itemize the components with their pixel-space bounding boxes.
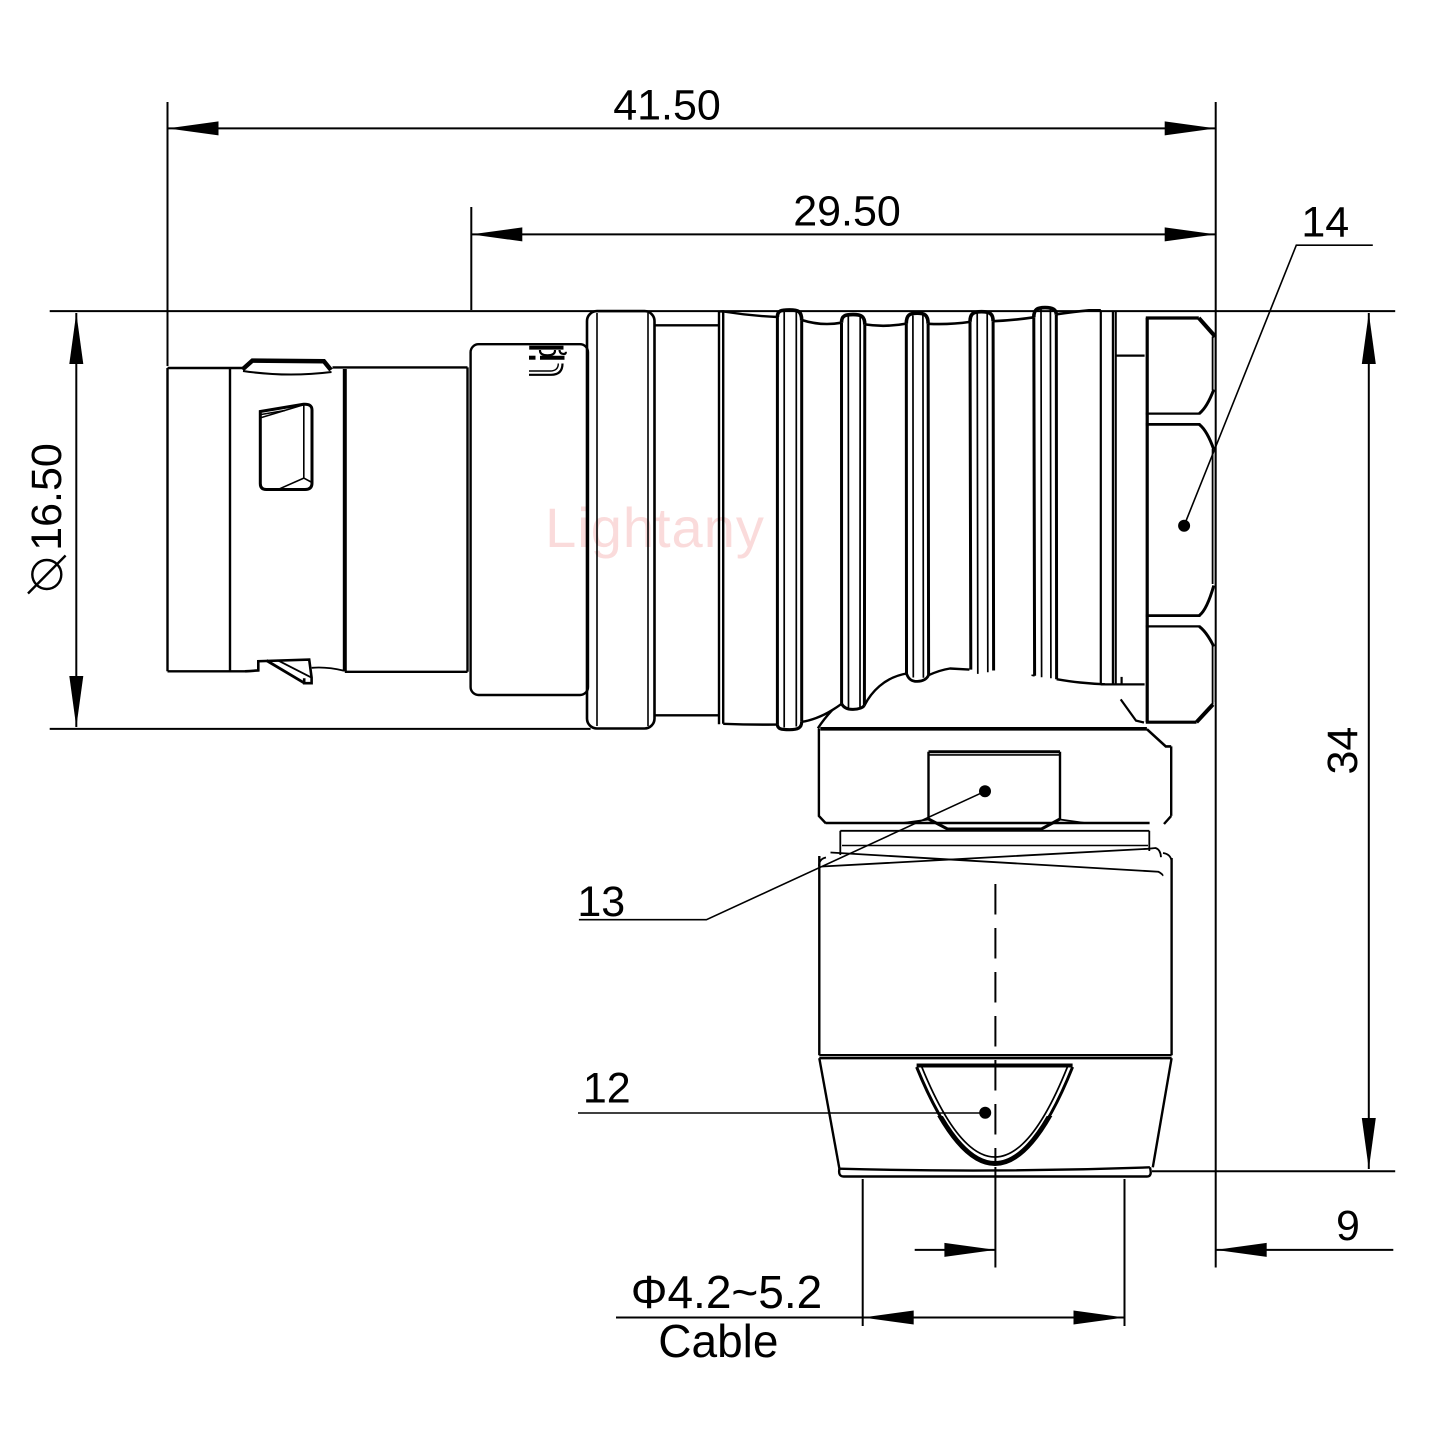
svg-text:16.50: 16.50 — [23, 443, 71, 551]
svg-text:14: 14 — [1301, 199, 1349, 247]
svg-text:41.50: 41.50 — [613, 82, 721, 130]
svg-text:12: 12 — [583, 1065, 631, 1113]
svg-text:9: 9 — [1336, 1202, 1360, 1250]
svg-text:Cable: Cable — [658, 1315, 778, 1367]
svg-text:34: 34 — [1319, 727, 1367, 775]
svg-text:Φ4.2~5.2: Φ4.2~5.2 — [631, 1266, 822, 1318]
svg-text:13: 13 — [577, 878, 625, 926]
svg-text:29.50: 29.50 — [793, 188, 901, 236]
